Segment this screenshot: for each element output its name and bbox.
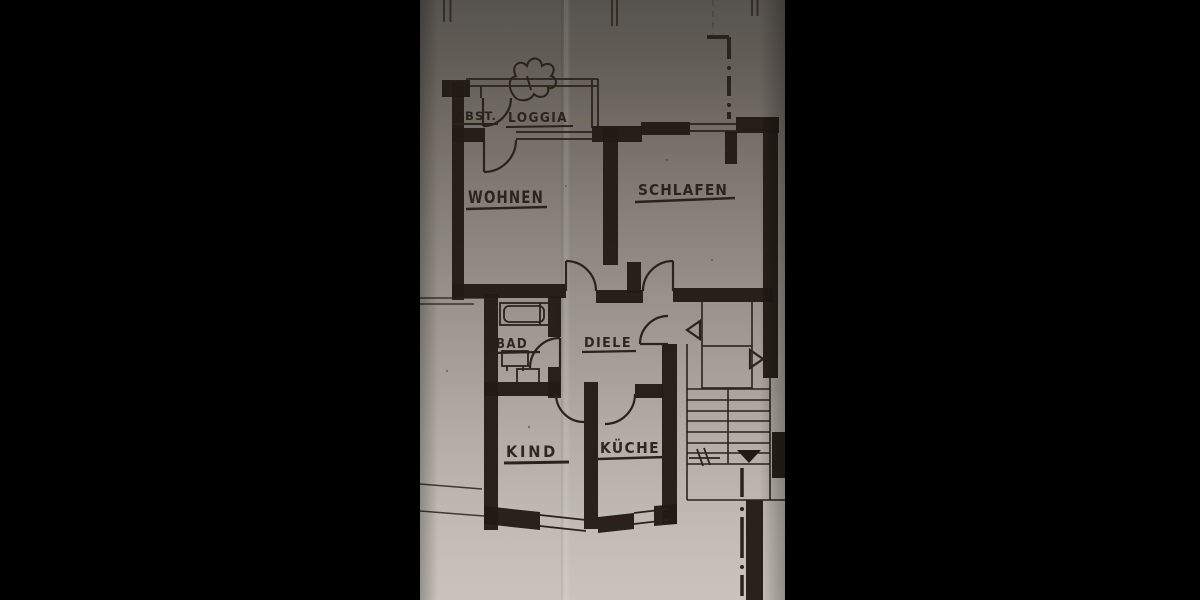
letterbox-left [0, 0, 420, 600]
floor-plan-drawing: ABST. LOGGIA WOHNEN SCHLAFEN BAD DIELE K… [420, 0, 785, 600]
floor-plan-photo: ABST. LOGGIA WOHNEN SCHLAFEN BAD DIELE K… [420, 0, 785, 600]
photo-right-shade [420, 0, 785, 600]
letterbox-right [785, 0, 1200, 600]
screenshot-root: ABST. LOGGIA WOHNEN SCHLAFEN BAD DIELE K… [0, 0, 1200, 600]
